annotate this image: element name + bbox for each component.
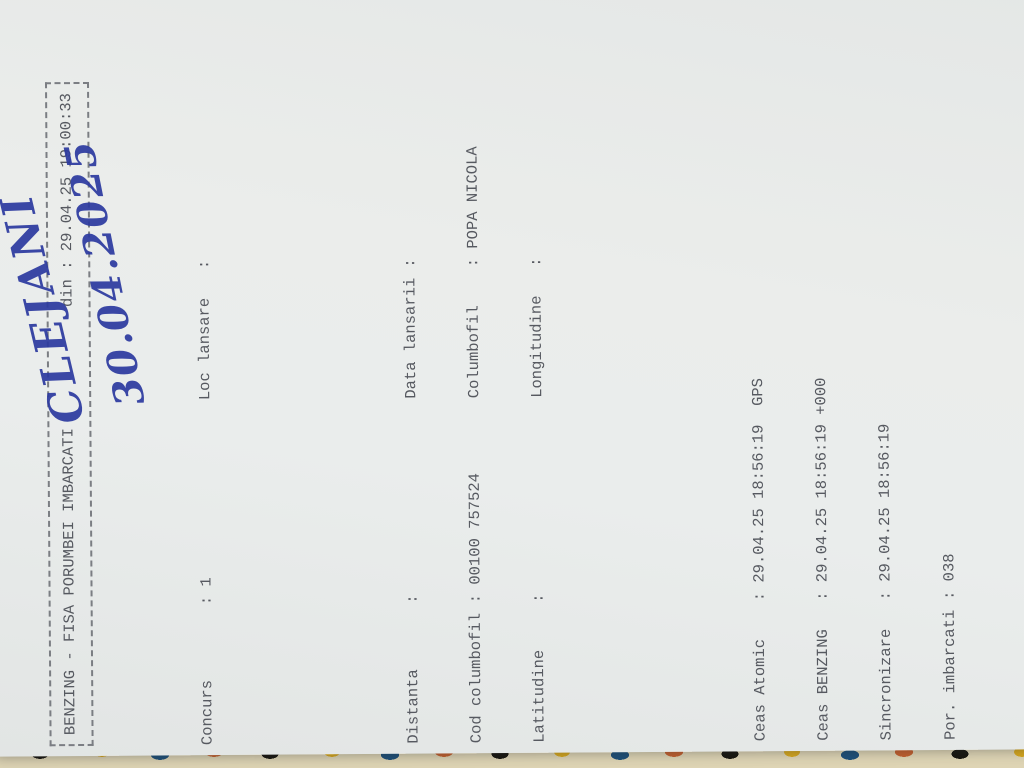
concurs-value: : 1 [198,400,215,605]
info-right-label: Data lansarii [403,268,420,399]
photo-of-printout: BENZING - FISA PORUMBEI IMBARCATI din : … [0,0,1024,768]
concurs-label: Concurs [200,605,217,745]
info-rows: Distanta : Data lansarii : Cod columbofi… [338,0,580,744]
info-left-value: : [404,399,421,604]
info-right-value: : [529,257,545,266]
info-right-label: Longitudine [529,267,546,398]
info-right-value: : [403,258,419,267]
info-row: Latitudine : Longitudine : [527,0,548,743]
clock-label: Por. imbarcati [942,600,959,740]
info-row-concurs: Concurs : 1 Loc lansare : [195,0,216,745]
clock-row: Ceas BENZING : 29.04.25 18:56:19 +000 [812,0,833,741]
info-left-value: : 00100 757524 [467,398,484,603]
info-left-value: : [530,398,547,603]
info-right-label: Columbofil [466,267,483,398]
clock-row: Sincronizare : 29.04.25 18:56:19 [875,0,896,740]
info-left-label: Distanta [405,604,422,744]
clock-row: Por. imbarcati : 038 [938,0,959,740]
clock-row: Ceas Atomic : 29.04.25 18:56:19 GPS [748,0,769,741]
info-row: Distanta : Data lansarii : [401,0,422,744]
clock-value: : 29.04.25 18:56:19 +000 [814,378,831,601]
loc-lansare-label: Loc lansare [197,269,214,400]
info-right-value: : POPA NICOLA [465,146,482,267]
info-left-label: Cod columbofil [468,603,485,743]
printout-document: BENZING - FISA PORUMBEI IMBARCATI din : … [0,0,1024,757]
loc-lansare-value: : [197,260,213,269]
clock-value: : 29.04.25 18:56:19 [878,424,895,601]
clock-label: Ceas BENZING [816,601,833,741]
info-row: Cod columbofil : 00100 757524 Columbofil… [464,0,485,743]
paper-sheet: BENZING - FISA PORUMBEI IMBARCATI din : … [0,0,1024,757]
clock-value: : 29.04.25 18:56:19 GPS [751,378,768,601]
clock-label: Sincronizare [879,600,896,740]
info-left-label: Latitudine [532,603,549,743]
clock-rows: Ceas Atomic : 29.04.25 18:56:19 GPS Ceas… [685,0,990,742]
clock-label: Ceas Atomic [753,601,770,741]
clock-value: : 038 [942,553,958,600]
page-title: BENZING - FISA PORUMBEI IMBARCATI [62,428,80,735]
